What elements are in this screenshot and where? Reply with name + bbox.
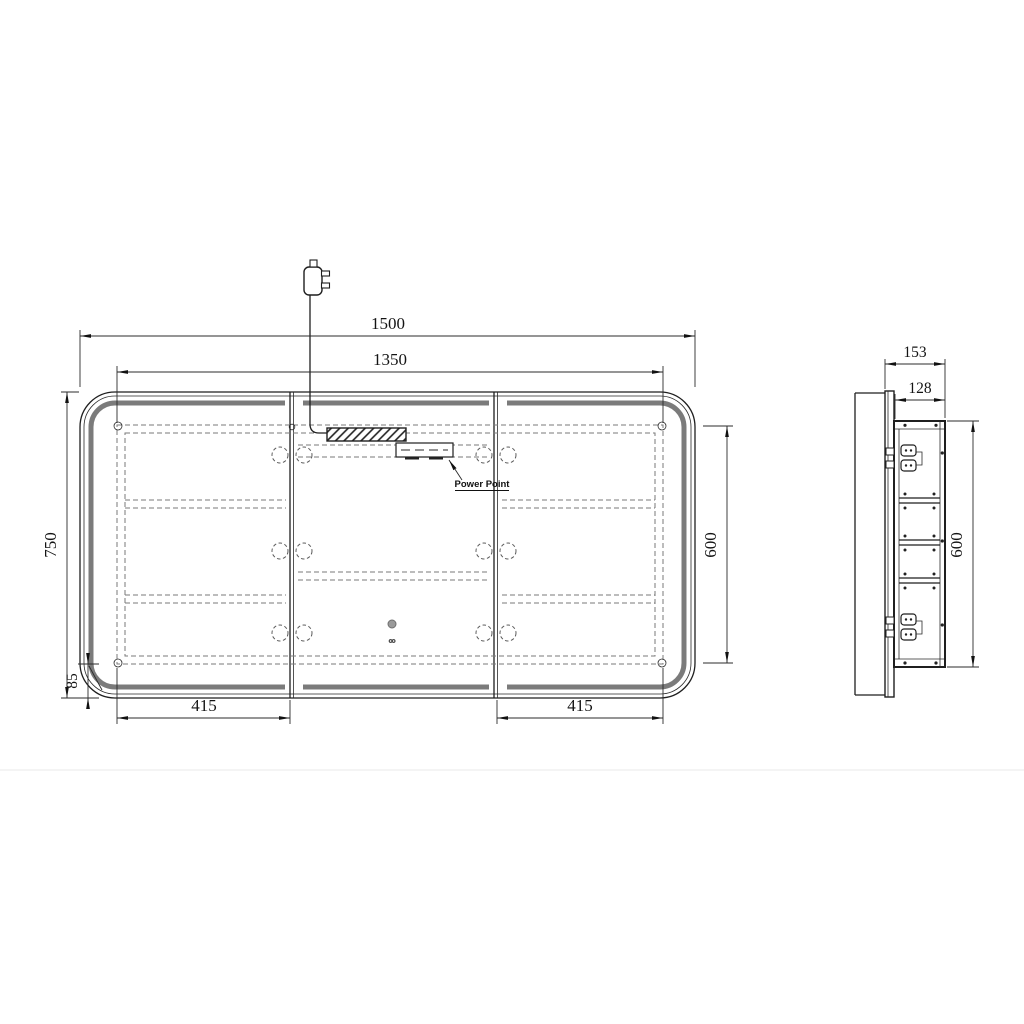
svg-text:600: 600 [701, 532, 720, 558]
shelf-lines-middle [298, 445, 490, 580]
hinge-circle [500, 543, 516, 559]
svg-text:415: 415 [191, 696, 217, 715]
led-driver [327, 428, 406, 441]
drawing-page: Power Point 1500 [0, 0, 1024, 1024]
corner-fixing-icon [114, 659, 122, 667]
cabinet-body-dashed [117, 425, 663, 664]
svg-text:1500: 1500 [371, 314, 405, 333]
plug-pin [322, 283, 330, 288]
power-cable [310, 295, 327, 433]
dim-1350: 1350 [117, 350, 663, 423]
front-dimensions: 1500 1350 750 85 6 [41, 314, 733, 724]
dim-600-front: 600 [701, 426, 733, 663]
power-socket [396, 443, 453, 460]
side-view [855, 391, 945, 697]
svg-text:128: 128 [908, 380, 932, 397]
shelf-lines-left [125, 500, 286, 603]
led-strip [91, 403, 684, 687]
shelf-lines-right [502, 500, 655, 603]
plug-pin [322, 271, 330, 276]
svg-text:153: 153 [903, 344, 927, 361]
hinge-circle [296, 543, 312, 559]
leader-arrow [449, 460, 462, 480]
hinge-circle [476, 543, 492, 559]
dim-415-left: 415 [117, 668, 290, 724]
hinge-circle [296, 447, 312, 463]
dim-600-side: 600 [947, 421, 979, 667]
dim-415-right: 415 [497, 668, 663, 724]
corner-fixing-icon [658, 422, 666, 430]
svg-text:1350: 1350 [373, 350, 407, 369]
side-cabinet-box [886, 421, 945, 667]
led-strip-gap [489, 681, 507, 692]
technical-drawing: Power Point 1500 [0, 0, 1024, 1024]
side-mirror-door [855, 391, 894, 697]
hinge-circle [500, 625, 516, 641]
svg-text:415: 415 [567, 696, 593, 715]
corner-fixing-icon [658, 659, 666, 667]
door-divider-left [290, 392, 294, 698]
hinge-circle [476, 625, 492, 641]
touch-sensor-icon [388, 620, 396, 642]
hinge-circle [500, 447, 516, 463]
svg-text:85: 85 [64, 673, 81, 689]
led-strip-gap [285, 398, 303, 409]
plug-pin [310, 260, 317, 267]
power-point-label: Power Point [455, 479, 511, 490]
hinge-circle [476, 447, 492, 463]
hinge-circle [272, 447, 288, 463]
svg-text:750: 750 [41, 532, 60, 558]
corner-fixing-icon [114, 422, 122, 430]
svg-text:600: 600 [947, 532, 966, 558]
door-divider-right [494, 392, 498, 698]
power-plug-icon [304, 260, 330, 433]
led-strip-gap [285, 681, 303, 692]
dim-128: 128 [895, 380, 945, 419]
hinge-circle [296, 625, 312, 641]
hinge-circle [272, 543, 288, 559]
led-strip-gap [489, 398, 507, 409]
hinge-circles [272, 447, 516, 641]
hinge-circle [272, 625, 288, 641]
power-point-callout: Power Point [449, 460, 510, 491]
